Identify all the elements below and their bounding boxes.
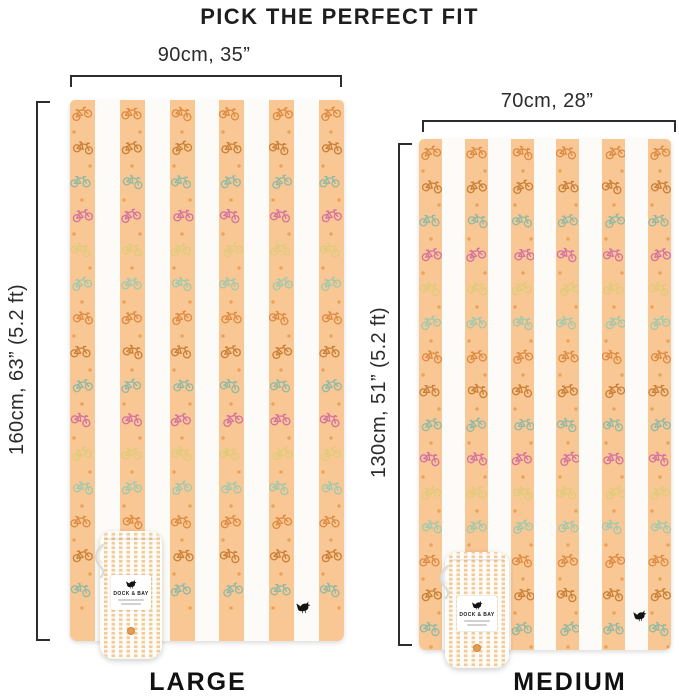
brand-bird-icon <box>471 600 483 610</box>
towel-stripe <box>244 100 269 641</box>
large-height-bracket <box>36 101 50 641</box>
medium-height-label: 130cm, 51” (5.2 ft) <box>362 143 396 642</box>
drawstring-icon <box>438 564 452 604</box>
pouch-brand-text: DOCK & BAY <box>458 612 496 618</box>
towel-stripe <box>648 139 671 650</box>
bicycle-pattern <box>556 139 579 650</box>
bicycle-pattern <box>170 100 195 641</box>
size-guide-graphic: PICK THE PERFECT FIT 90cm, 35” 160cm, 63… <box>0 0 679 700</box>
large-width-label: 90cm, 35” <box>70 44 338 67</box>
large-height-label: 160cm, 63” (5.2 ft) <box>0 101 34 637</box>
medium-height-label-text: 130cm, 51” (5.2 ft) <box>368 307 391 478</box>
pouch-brand-patch: DOCK & BAY <box>457 596 497 631</box>
pouch-brand-patch: DOCK & BAY <box>111 575 151 610</box>
large-height-label-text: 160cm, 63” (5.2 ft) <box>6 284 29 455</box>
pouch-fineprint-line <box>118 599 144 601</box>
pouch-brand-text: DOCK & BAY <box>112 591 150 597</box>
towel-stripe <box>534 139 557 650</box>
towel-stripe <box>219 100 244 641</box>
pouch-fineprint-line <box>121 603 141 605</box>
towel-stripe <box>625 139 648 650</box>
large-width-bracket <box>70 75 342 87</box>
pouch-size-badge <box>473 644 481 652</box>
bicycle-pattern <box>602 139 625 650</box>
brand-bird-icon <box>295 600 311 614</box>
towel-stripe <box>195 100 220 641</box>
towel-stripe <box>70 100 95 641</box>
bicycle-pattern <box>319 100 344 641</box>
bicycle-pattern <box>511 139 534 650</box>
towel-stripe <box>511 139 534 650</box>
medium-width-bracket <box>422 120 676 132</box>
towel-stripe <box>294 100 319 641</box>
drawstring-icon <box>93 543 107 583</box>
medium-storage-pouch: DOCK & BAY <box>445 552 509 668</box>
towel-stripe <box>556 139 579 650</box>
page-title: PICK THE PERFECT FIT <box>0 4 679 30</box>
large-size-label: LARGE <box>108 668 288 697</box>
medium-size-label: MEDIUM <box>480 668 660 697</box>
pouch-fineprint-line <box>464 620 490 622</box>
brand-bird-icon <box>632 609 647 622</box>
pouch-fineprint-line <box>467 624 487 626</box>
towel-stripe <box>269 100 294 641</box>
medium-height-bracket <box>398 143 412 646</box>
towel-stripe <box>170 100 195 641</box>
bicycle-pattern <box>648 139 671 650</box>
bicycle-pattern <box>269 100 294 641</box>
medium-width-label: 70cm, 28” <box>422 90 672 113</box>
brand-bird-icon <box>125 579 137 589</box>
towel-stripe <box>579 139 602 650</box>
bicycle-pattern <box>219 100 244 641</box>
bicycle-pattern <box>70 100 95 641</box>
towel-stripe <box>319 100 344 641</box>
pouch-size-badge <box>127 627 135 635</box>
large-storage-pouch: DOCK & BAY <box>100 531 162 659</box>
towel-stripe <box>602 139 625 650</box>
